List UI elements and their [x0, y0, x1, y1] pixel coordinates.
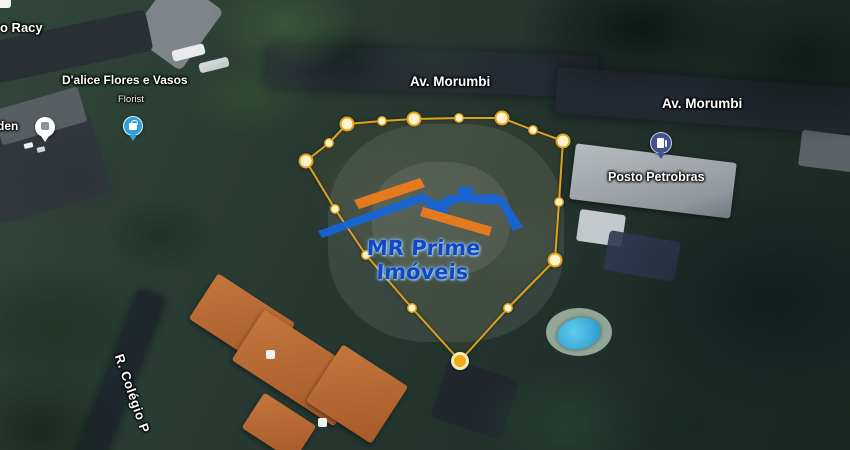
vertex-handle-selected[interactable]: [453, 354, 468, 369]
label-av-morumbi-right: Av. Morumbi: [662, 96, 742, 111]
vertex-handle[interactable]: [300, 155, 313, 168]
poi-pin-icon: [41, 122, 49, 130]
fuel-pump-icon: [657, 138, 664, 148]
vertex-handle[interactable]: [496, 112, 509, 125]
fuel-pump-hose-icon: [665, 140, 667, 147]
poi-pin-pointer: [41, 136, 49, 142]
label-av-morumbi-center: Av. Morumbi: [410, 74, 490, 89]
label-posto-petrobras: Posto Petrobras: [608, 170, 705, 184]
vertex-handle[interactable]: [504, 304, 512, 312]
vertex-handle[interactable]: [549, 254, 562, 267]
vertex-handle[interactable]: [529, 126, 537, 134]
vertex-handle[interactable]: [331, 205, 339, 213]
vertex-handle[interactable]: [455, 114, 463, 122]
vertex-handle[interactable]: [408, 113, 421, 126]
gas-station-pin-pointer: [657, 153, 665, 159]
vertex-handle[interactable]: [555, 198, 563, 206]
florist-bag-icon: [129, 123, 137, 130]
vertex-handle[interactable]: [557, 135, 570, 148]
label-racy: o Racy: [0, 20, 43, 35]
satellite-map-canvas[interactable]: o Racy D'alice Flores e Vasos Florist de…: [0, 0, 850, 450]
watermark-text: MR Prime Imóveis: [322, 236, 525, 284]
label-florist-category: Florist: [118, 94, 144, 105]
vertex-handle[interactable]: [341, 118, 354, 131]
label-den: den: [0, 119, 18, 133]
vertex-handle[interactable]: [408, 304, 416, 312]
label-dalice-flores: D'alice Flores e Vasos: [62, 73, 188, 87]
vertex-handle[interactable]: [378, 117, 386, 125]
florist-pin-pointer: [129, 135, 137, 141]
vertex-handle[interactable]: [325, 139, 333, 147]
cropped-label-chip: [0, 0, 11, 8]
